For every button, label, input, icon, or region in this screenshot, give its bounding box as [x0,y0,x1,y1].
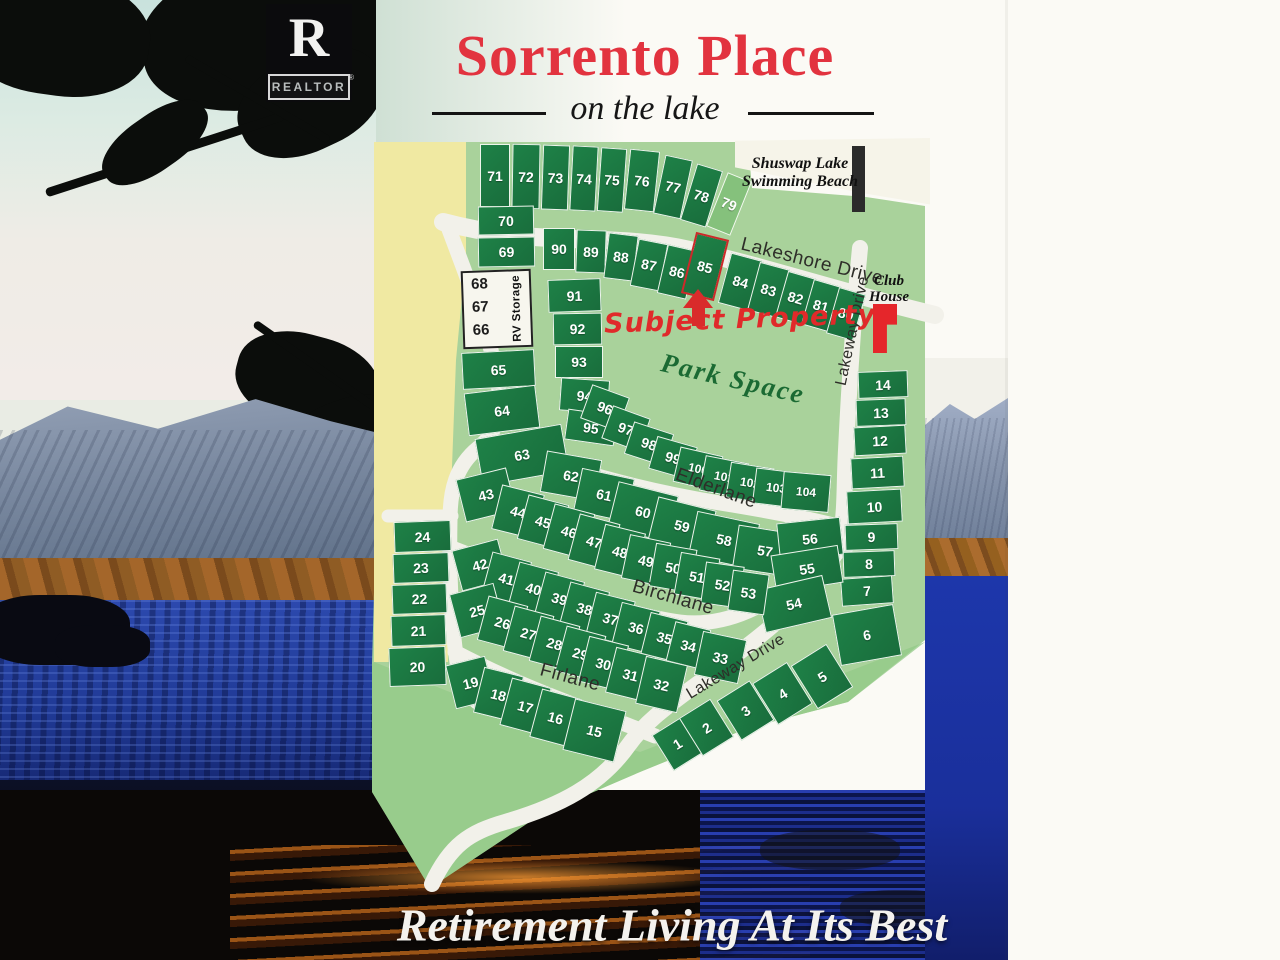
lot-number: 15 [585,721,604,740]
lot-92: 92 [553,313,603,346]
lot-14: 14 [858,370,909,399]
lot-number: 55 [798,560,816,578]
registered-mark: ® [348,73,354,82]
lot-67: 67 [472,298,489,316]
realtor-logo: R REALTOR ® [266,4,352,102]
rv-storage-box: 68 67 66 RV Storage [461,269,534,349]
lot-number: 84 [731,272,750,291]
lot-number: 13 [873,404,889,421]
lot-number: 21 [410,622,426,639]
lot-number: 60 [633,502,652,521]
lot-number: 59 [672,516,691,535]
lot-69: 69 [478,237,536,268]
lot-number: 3 [738,702,753,720]
lot-number: 43 [476,485,495,504]
lot-number: 54 [785,594,804,613]
lot-number: 91 [566,287,582,304]
lot-53: 53 [727,570,769,616]
lot-70: 70 [478,206,534,236]
realtor-r-icon: R [266,6,352,70]
lot-73: 73 [541,145,570,211]
lot-number: 5 [814,668,829,686]
lot-number: 8 [865,556,873,572]
lot-9: 9 [845,523,899,551]
lot-number: 32 [652,675,671,694]
lot-number: 23 [413,560,429,577]
lot-number: 52 [714,576,732,594]
lot-20: 20 [388,646,446,687]
lot-number: 31 [621,665,640,684]
lot-number: 75 [604,171,621,188]
lot-21: 21 [390,614,446,647]
lot-number: 62 [562,467,580,485]
lot-10: 10 [846,489,903,525]
lot-number: 85 [695,257,714,276]
lot-number: 89 [583,243,599,260]
lot-23: 23 [392,552,449,584]
lot-number: 9 [867,529,875,545]
slogan: Retirement Living At Its Best [397,899,947,952]
lot-93: 93 [555,346,603,378]
realtor-wordmark: REALTOR [268,74,350,100]
lot-89: 89 [575,229,606,273]
lot-12: 12 [853,425,906,457]
lot-6: 6 [832,604,902,666]
lot-number: 63 [513,446,531,464]
realtor-wordmark-text: REALTOR [272,80,346,94]
lot-number: 34 [679,636,698,655]
lot-8: 8 [843,550,896,578]
subtitle-rule-left [432,112,546,115]
lot-number: 14 [875,376,891,393]
lot-75: 75 [597,147,627,213]
lot-number: 58 [715,531,734,550]
lot-number: 93 [571,354,587,370]
lot-number: 65 [490,361,506,378]
lot-number: 22 [411,591,427,608]
lot-number: 11 [870,464,886,481]
lot-number: 69 [499,244,515,260]
lot-24: 24 [393,520,451,553]
lot-number: 72 [518,168,534,184]
lot-number: 19 [461,673,480,692]
lot-number: 77 [664,178,683,197]
lot-number: 10 [866,498,882,515]
beach-label-line1: Shuswap Lake [725,155,875,173]
lot-74: 74 [569,145,598,211]
lot-72: 72 [511,144,540,209]
lot-90: 90 [543,228,575,270]
lot-number: 16 [546,708,565,727]
lot-7: 7 [840,575,894,607]
lot-number: 74 [576,170,592,187]
lot-number: 83 [759,280,778,299]
lot-number: 61 [595,486,614,505]
lot-number: 53 [740,583,758,601]
lot-number: 24 [414,528,430,545]
lot-number: 70 [498,212,514,228]
lot-104: 104 [780,471,831,513]
lot-13: 13 [856,398,907,427]
lot-number: 4 [775,685,790,703]
rv-storage-label: RV Storage [510,275,524,342]
lot-number: 92 [570,321,586,337]
lot-number: 20 [409,658,425,675]
lot-number: 56 [801,530,818,548]
subject-property-arrow-icon [692,306,705,326]
road-network [0,0,1280,960]
lot-number: 71 [487,168,503,184]
lot-number: 2 [699,719,714,737]
lot-number: 64 [493,402,510,420]
lot-number: 12 [872,432,888,449]
beach-label-line2: Swimming Beach [725,173,875,191]
page-subtitle: on the lake [570,90,719,128]
lot-number: 87 [640,256,658,275]
lot-number: 90 [551,241,567,257]
lot-68: 68 [471,275,488,293]
page-title: Sorrento Place [456,22,835,89]
lot-65: 65 [461,349,536,390]
lot-number: 6 [862,626,872,643]
lot-number: 104 [795,484,816,500]
club-label-line1: Club [869,273,909,289]
lot-91: 91 [547,278,601,313]
lot-number: 7 [863,583,872,600]
lot-number: 88 [612,248,629,266]
subtitle-rule-right [748,112,874,115]
lot-number: 76 [633,172,650,190]
lot-number: 78 [692,186,712,206]
lot-number: 73 [547,169,563,186]
flyer-canvas: 7172737475767778797069656490898887868584… [0,0,1280,960]
lot-number: 1 [670,735,685,753]
lot-66: 66 [472,321,489,339]
lot-71: 71 [480,144,510,207]
lot-number: 17 [516,697,535,716]
lot-number: 79 [719,194,739,215]
lot-22: 22 [391,583,447,615]
lot-11: 11 [850,456,905,490]
lot-number: 36 [626,618,645,637]
